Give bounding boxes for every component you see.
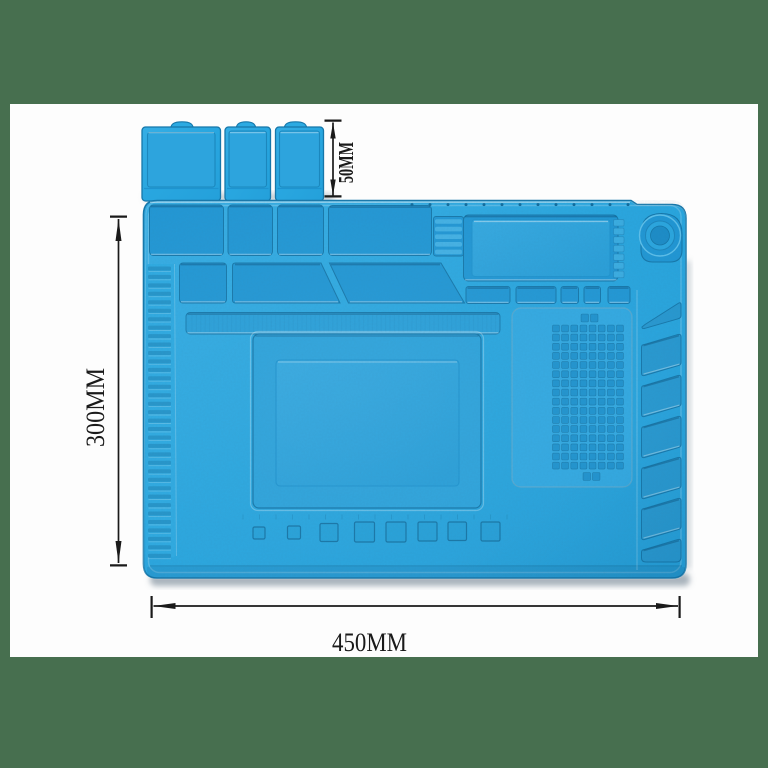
- svg-text:50MM: 50MM: [334, 142, 357, 183]
- svg-text:300MM: 300MM: [81, 368, 110, 447]
- svg-text:450MM: 450MM: [332, 629, 407, 658]
